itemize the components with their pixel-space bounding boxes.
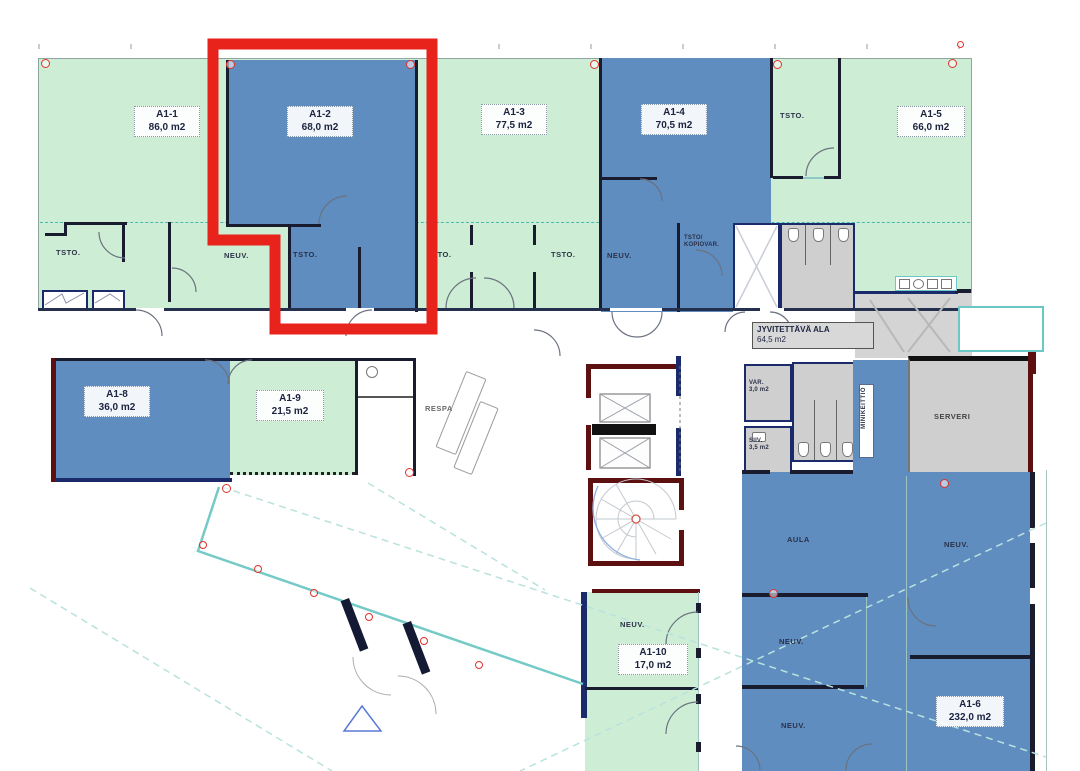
unit-label-a1-1: A1-1 86,0 m2	[134, 106, 200, 137]
toilet-icon	[842, 442, 853, 457]
unit-area: 68,0 m2	[291, 122, 349, 135]
grid-marker	[957, 41, 964, 48]
toilet-icon	[813, 228, 824, 242]
label-line: 3,5 m2	[749, 445, 769, 452]
window-glass	[803, 177, 824, 179]
unit-label-a1-6: A1-6 232,0 m2	[936, 696, 1004, 727]
grid-reference-line	[38, 44, 968, 49]
label-tsto: TSTO.	[56, 248, 80, 257]
grid-marker	[310, 589, 318, 597]
grid-marker	[769, 589, 778, 598]
unit-area: 36,0 m2	[88, 402, 146, 415]
wall	[51, 358, 56, 482]
wall	[1028, 352, 1036, 374]
label-line: VAR.	[749, 380, 769, 387]
appliance-icons	[895, 276, 957, 291]
unit-label-a1-9: A1-9 21,5 m2	[256, 390, 324, 421]
wall	[592, 589, 700, 593]
wall	[742, 685, 864, 689]
wall	[1030, 472, 1035, 771]
wall	[64, 222, 67, 236]
label-neuv: NEUV.	[781, 721, 806, 730]
label-respa: RESPA	[425, 404, 453, 413]
label-neuv: NEUV.	[607, 251, 632, 260]
label-serveri: SERVERI	[934, 412, 970, 421]
label-line: TSTO/	[684, 235, 719, 242]
wall	[599, 58, 602, 310]
shared-area-label: JYVITETTÄVÄ ALA 64,5 m2	[752, 322, 874, 349]
room-a1-2-tsto-wing	[288, 226, 418, 310]
label-neuv: NEUV.	[779, 637, 804, 646]
corridor-glass-line	[906, 476, 907, 771]
label-line: KOPIOVAR.	[684, 242, 719, 249]
wall	[581, 592, 587, 718]
wall	[742, 593, 868, 597]
label-tsto: TSTO.	[551, 250, 575, 259]
sink-icon	[366, 366, 378, 378]
wall	[413, 358, 416, 476]
room-a1-10[interactable]	[585, 592, 699, 771]
label-neuv: NEUV.	[944, 540, 969, 549]
unit-id: A1-2	[291, 109, 349, 122]
unit-id: A1-8	[88, 389, 146, 402]
unit-area: 21,5 m2	[260, 406, 320, 419]
corridor-glass-line	[866, 595, 867, 687]
grid-marker	[948, 59, 957, 68]
room-serveri	[908, 356, 1033, 488]
toilet-icon	[798, 442, 809, 457]
grid-marker	[365, 613, 373, 621]
wc-divider	[830, 225, 831, 265]
label-tsto: TSTO.	[780, 111, 804, 120]
door-jamb	[696, 742, 701, 752]
grid-marker	[41, 59, 50, 68]
label-tsto-kopiovar: TSTO/ KOPIOVAR.	[684, 235, 719, 249]
room-a1-2[interactable]	[226, 60, 418, 226]
label-aula: AULA	[787, 535, 810, 544]
window-block	[42, 290, 88, 310]
grid-marker	[406, 60, 415, 69]
label-line: SIIV.	[749, 438, 769, 445]
wall	[470, 272, 473, 310]
terrace-room	[958, 306, 1044, 352]
wall	[601, 177, 657, 180]
wall	[910, 655, 1034, 659]
room-a1-4[interactable]	[601, 58, 771, 223]
wall	[55, 358, 416, 361]
unit-label-a1-3: A1-3 77,5 m2	[481, 104, 547, 135]
unit-id: A1-9	[260, 393, 320, 406]
grid-marker	[405, 468, 414, 477]
wall	[677, 223, 680, 312]
label-line: 3,0 m2	[749, 387, 769, 394]
room-a1-8[interactable]	[55, 360, 230, 480]
shaft-room	[733, 223, 780, 310]
unit-area: 17,0 m2	[622, 660, 684, 673]
unit-id: A1-6	[940, 699, 1000, 712]
wall	[773, 176, 803, 179]
wall	[168, 222, 171, 302]
unit-area: 232,0 m2	[940, 712, 1000, 725]
wall	[790, 470, 853, 474]
unit-area: 66,0 m2	[901, 122, 961, 135]
facade-line	[1046, 470, 1047, 771]
grid-marker	[590, 60, 599, 69]
wall	[585, 687, 699, 690]
wall	[226, 60, 229, 226]
wall	[355, 360, 358, 475]
unit-id: A1-4	[645, 107, 703, 120]
door-opening	[136, 308, 164, 311]
door-opening	[760, 308, 784, 311]
wall	[742, 470, 770, 474]
label-neuv: NEUV.	[224, 251, 249, 260]
grid-marker	[222, 484, 231, 493]
door-jamb	[696, 648, 701, 658]
window-opening	[1030, 588, 1035, 604]
label-neuv: NEUV.	[620, 620, 645, 629]
wall	[55, 478, 232, 482]
unit-label-a1-4: A1-4 70,5 m2	[641, 104, 707, 135]
toilet-icon	[820, 442, 831, 457]
wc-divider	[805, 225, 806, 265]
wall	[533, 272, 536, 310]
unit-id: A1-5	[901, 109, 961, 122]
floor-plan: A1-1 86,0 m2 A1-2 68,0 m2 A1-3 77,5 m2 A…	[0, 0, 1080, 771]
grid-marker	[773, 60, 782, 69]
wall	[533, 225, 536, 245]
wall	[358, 396, 413, 398]
unit-area: 77,5 m2	[485, 120, 543, 133]
label-var: VAR. 3,0 m2	[749, 380, 769, 394]
grid-marker	[475, 661, 483, 669]
shared-area-size: 64,5 m2	[757, 335, 869, 345]
wall	[770, 58, 773, 178]
label-minikeittio: MINIKEITTIÖ	[861, 387, 868, 429]
label-tsto: TSTO.	[427, 250, 451, 259]
grid-marker	[940, 479, 949, 488]
band-bottom-wall	[38, 308, 972, 311]
unit-area: 70,5 m2	[645, 120, 703, 133]
unit-id: A1-3	[485, 107, 543, 120]
grid-marker	[199, 541, 207, 549]
door-jamb	[696, 603, 701, 613]
unit-label-a1-5: A1-5 66,0 m2	[897, 106, 965, 137]
wall	[358, 247, 361, 310]
wall	[288, 226, 291, 310]
toilet-icon	[838, 228, 849, 242]
unit-label-a1-10: A1-10 17,0 m2	[618, 644, 688, 675]
grid-marker	[420, 637, 428, 645]
unit-id: A1-1	[138, 109, 196, 122]
wall	[415, 60, 418, 312]
door-opening	[610, 308, 662, 311]
door-jamb	[696, 694, 701, 704]
unit-label-a1-2: A1-2 68,0 m2	[287, 106, 353, 137]
label-tsto: TSTO.	[293, 250, 317, 259]
unit-label-a1-8: A1-8 36,0 m2	[84, 386, 150, 417]
shared-area-name: JYVITETTÄVÄ ALA	[757, 325, 869, 335]
wall	[226, 224, 321, 227]
window-opening	[1030, 528, 1035, 543]
toilet-icon	[788, 228, 799, 242]
unit-id: A1-10	[622, 647, 684, 660]
door-opening	[346, 308, 374, 311]
wall	[428, 58, 430, 310]
wall	[470, 225, 473, 245]
wall	[955, 289, 971, 293]
window-block	[92, 290, 125, 310]
wall	[824, 176, 841, 179]
grid-marker	[254, 565, 262, 573]
entry-wc-room	[358, 360, 413, 475]
wall	[855, 291, 958, 294]
label-siiv: SIIV. 3,5 m2	[749, 438, 769, 452]
grid-marker	[226, 60, 235, 69]
unit-area: 86,0 m2	[138, 122, 196, 135]
wall	[64, 222, 127, 225]
wall	[122, 222, 125, 262]
wall	[838, 58, 841, 178]
wc-divider	[836, 400, 837, 460]
wc-divider	[814, 400, 815, 460]
